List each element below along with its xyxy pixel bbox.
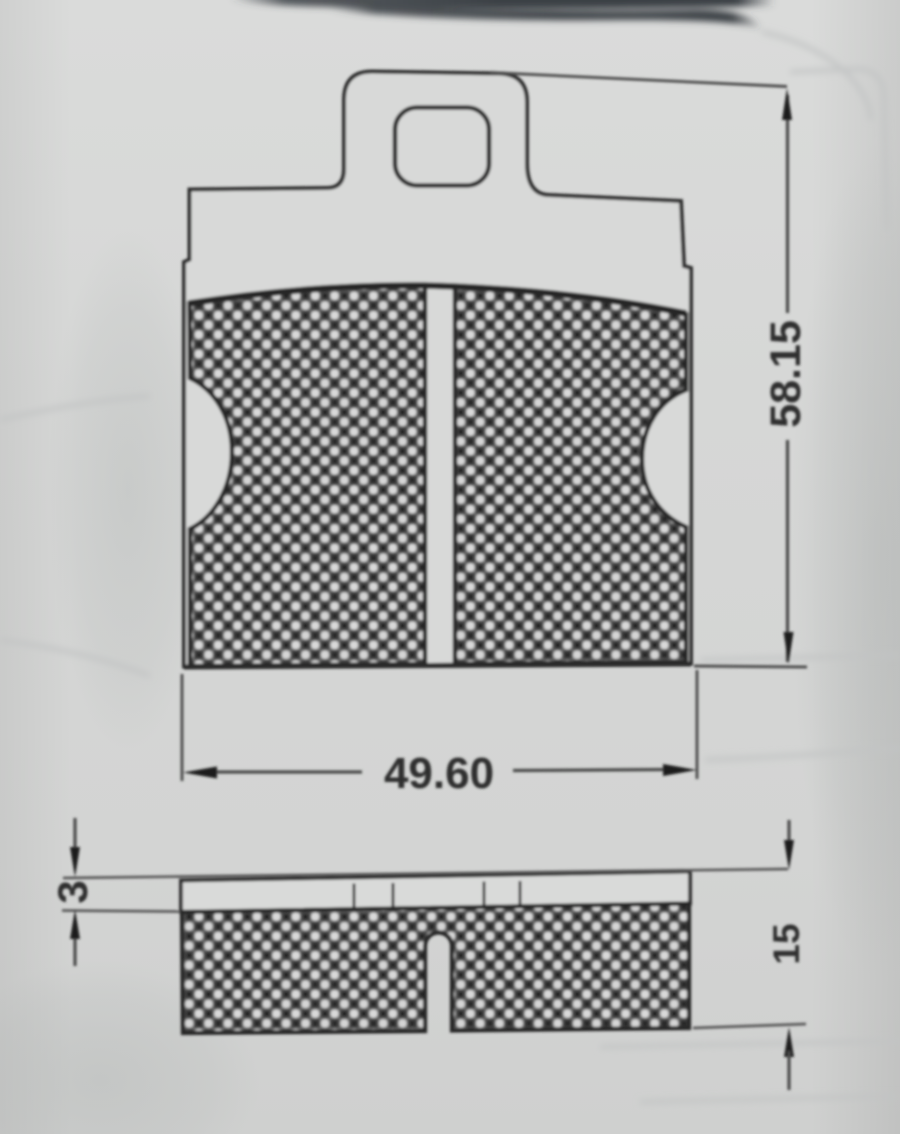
svg-text:15: 15	[766, 923, 807, 964]
svg-text:58.15: 58.15	[762, 320, 810, 428]
svg-text:3: 3	[49, 880, 96, 903]
svg-text:49.60: 49.60	[384, 749, 494, 798]
